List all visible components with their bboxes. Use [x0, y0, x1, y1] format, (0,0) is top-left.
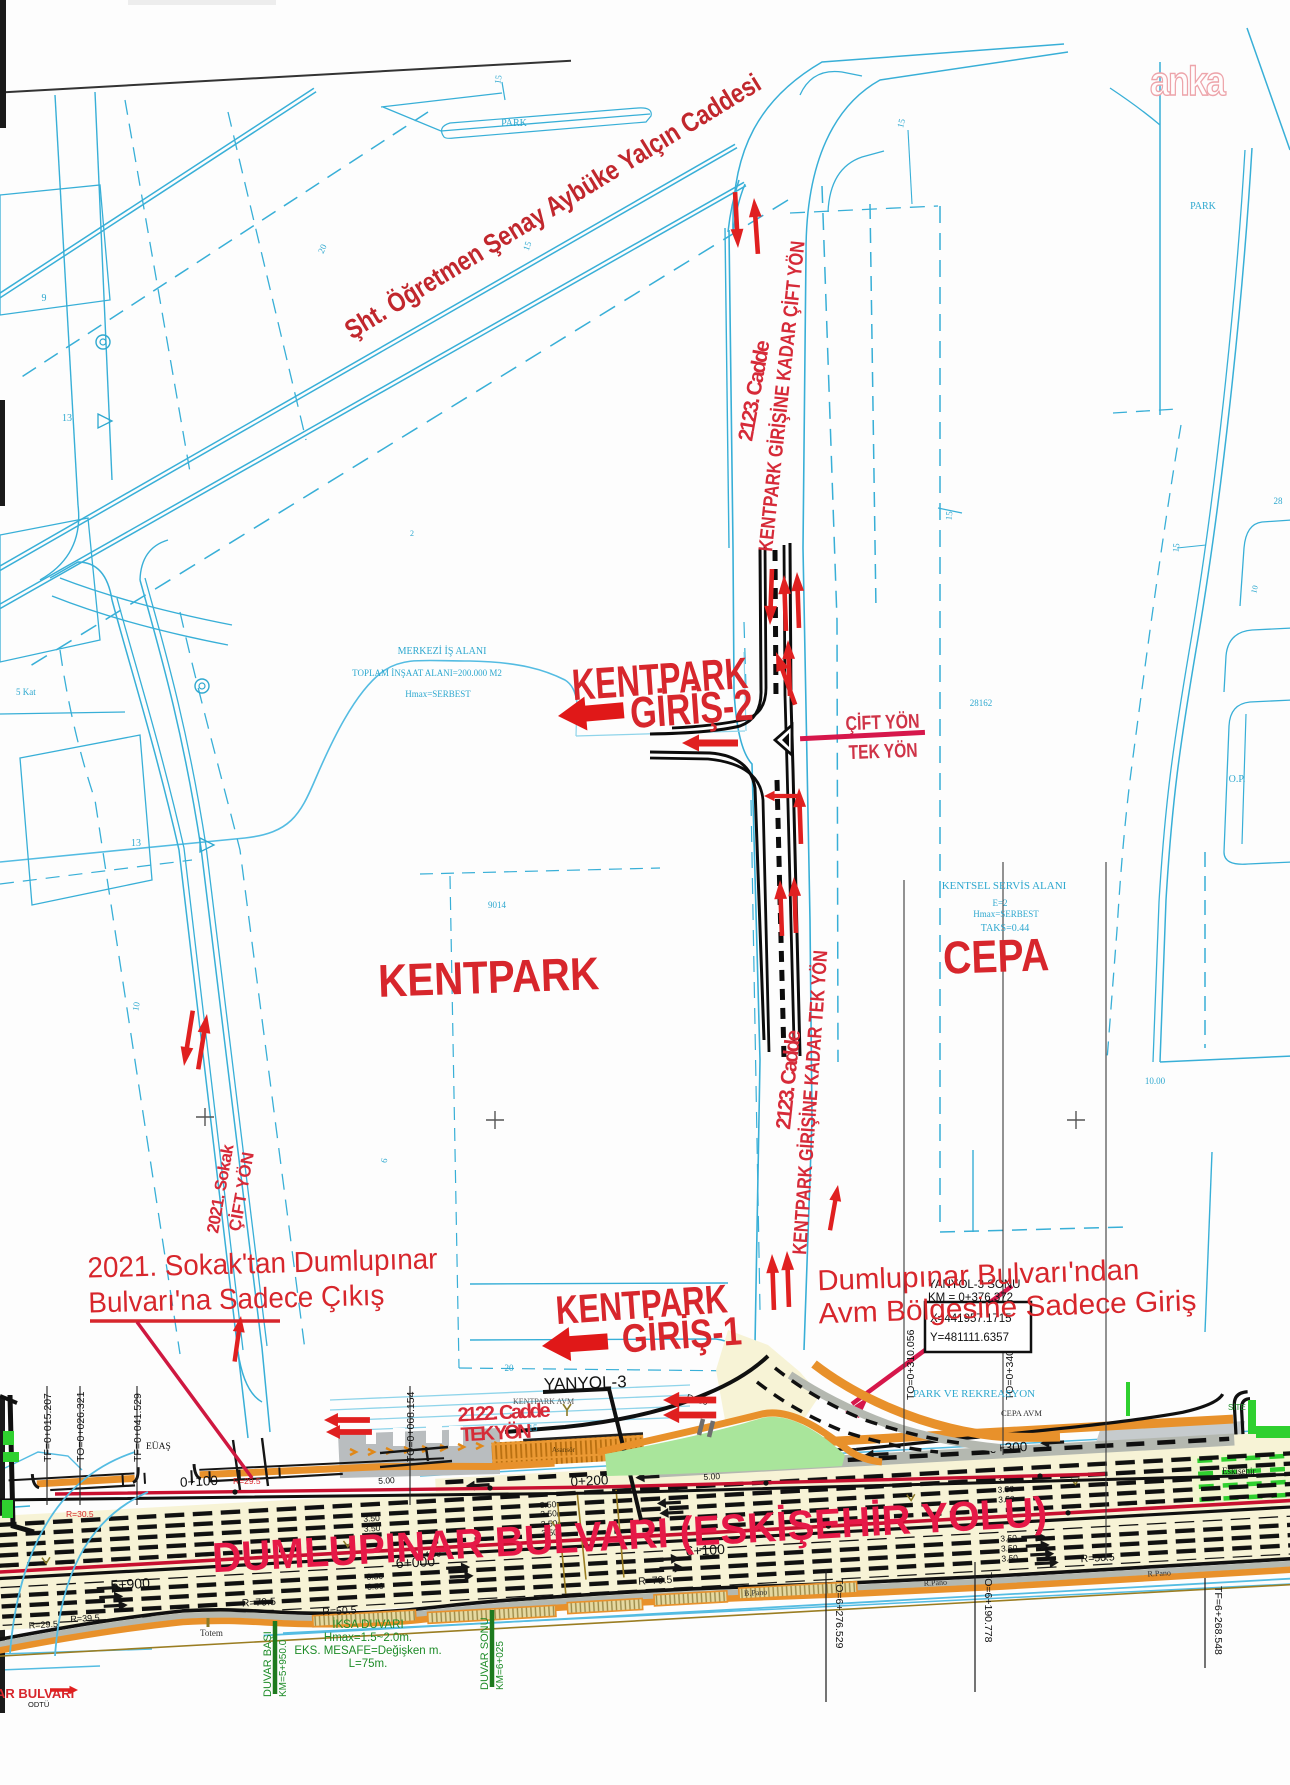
svg-text:5 Kat: 5 Kat [16, 687, 36, 697]
svg-text:TEK YÖN: TEK YÖN [460, 1420, 532, 1447]
svg-text:EKS. MESAFE=Değişken m.: EKS. MESAFE=Değişken m. [294, 1645, 441, 1657]
svg-text:R=50.5: R=50.5 [1080, 1551, 1115, 1565]
svg-text:Eskişehir: Eskişehir [1222, 1466, 1256, 1476]
svg-text:TF=6+268.548: TF=6+268.548 [1212, 1586, 1224, 1655]
svg-text:R.Pano: R.Pano [1147, 1568, 1171, 1578]
svg-text:9014: 9014 [488, 900, 507, 910]
svg-text:CEPA AVM: CEPA AVM [1001, 1408, 1042, 1418]
svg-text:3.50: 3.50 [367, 1581, 384, 1592]
svg-text:15: 15 [1171, 542, 1182, 552]
svg-text:13: 13 [62, 413, 72, 424]
svg-text:DUVAR SONU: DUVAR SONU [479, 1617, 491, 1690]
svg-text:Hmax=SERBEST: Hmax=SERBEST [405, 689, 471, 699]
svg-text:ODTÜ: ODTÜ [28, 1700, 49, 1709]
svg-text:Y=481111.6357: Y=481111.6357 [930, 1332, 1009, 1344]
svg-text:0+100: 0+100 [180, 1473, 219, 1490]
svg-text:Asansör: Asansör [552, 1446, 576, 1454]
svg-text:5+900: 5+900 [110, 1575, 150, 1593]
svg-text:28: 28 [1274, 496, 1284, 506]
svg-text:2: 2 [410, 529, 414, 538]
svg-text:28162: 28162 [970, 698, 993, 708]
svg-text:İKSA DUVARI: İKSA DUVARI [332, 1618, 403, 1631]
svg-text:3.50: 3.50 [1001, 1553, 1018, 1564]
svg-text:R.Pano: R.Pano [923, 1578, 947, 1588]
svg-text:GİRİŞ-2: GİRİŞ-2 [629, 681, 755, 738]
svg-text:20: 20 [505, 1363, 515, 1373]
svg-text:O.P.: O.P. [1229, 774, 1246, 785]
svg-text:R=29.5: R=29.5 [28, 1619, 58, 1631]
svg-text:PARK: PARK [1190, 201, 1217, 212]
svg-text:R=39.5: R=39.5 [70, 1613, 100, 1625]
svg-text:5.00: 5.00 [378, 1475, 395, 1486]
svg-text:anka: anka [1150, 58, 1227, 104]
svg-text:9: 9 [42, 293, 47, 304]
svg-text:TF=0+015.207: TF=0+015.207 [42, 1393, 54, 1462]
svg-text:GİRİŞ-1: GİRİŞ-1 [620, 1309, 743, 1361]
svg-text:KM=5+950.0: KM=5+950.0 [278, 1639, 289, 1697]
svg-text:TO=6+190.778: TO=6+190.778 [982, 1572, 994, 1643]
svg-text:R=30.5: R=30.5 [66, 1509, 94, 1519]
svg-text:Hmax=1.5~2.0m.: Hmax=1.5~2.0m. [324, 1632, 412, 1644]
svg-text:B.Pano: B.Pano [744, 1588, 768, 1598]
svg-text:PARK VE REKREASYON: PARK VE REKREASYON [913, 1388, 1035, 1400]
svg-text:L=75m.: L=75m. [349, 1658, 388, 1670]
svg-text:KENTPARK: KENTPARK [377, 947, 600, 1007]
svg-text:E=2: E=2 [992, 898, 1007, 908]
svg-text:TEK YÖN: TEK YÖN [848, 739, 918, 764]
svg-text:KM=6+025: KM=6+025 [495, 1641, 506, 1690]
svg-text:KENTSEL SERVİS ALANI: KENTSEL SERVİS ALANI [942, 880, 1067, 892]
svg-text:15: 15 [529, 1423, 539, 1433]
svg-text:R=79.5: R=79.5 [638, 1574, 673, 1588]
svg-text:Totem: Totem [200, 1628, 223, 1638]
svg-text:TO=0+026.321: TO=0+026.321 [75, 1391, 87, 1462]
svg-text:SİTE: SİTE [1228, 1403, 1246, 1412]
svg-text:DUVAR BAŞI: DUVAR BAŞI [262, 1631, 274, 1697]
svg-text:Hmax=SERBEST: Hmax=SERBEST [973, 909, 1039, 919]
svg-text:TOPLAM İNŞAAT ALANI=200.000 M2: TOPLAM İNŞAAT ALANI=200.000 M2 [352, 668, 502, 678]
svg-text:TO=6+276.529: TO=6+276.529 [833, 1578, 845, 1649]
svg-text:R=79.5: R=79.5 [241, 1596, 276, 1610]
svg-text:EÜAŞ: EÜAŞ [146, 1440, 171, 1452]
svg-text:15: 15 [944, 510, 955, 520]
svg-text:TAKS=0.44: TAKS=0.44 [981, 923, 1029, 934]
svg-text:CEPA: CEPA [942, 928, 1050, 984]
svg-text:KENTPARK AVM: KENTPARK AVM [513, 1397, 574, 1406]
svg-text:TF=0+041.529: TF=0+041.529 [132, 1393, 144, 1462]
svg-text:MERKEZİ İŞ ALANI: MERKEZİ İŞ ALANI [398, 645, 487, 657]
svg-text:10.00: 10.00 [1145, 1076, 1166, 1086]
svg-text:R=50.5: R=50.5 [322, 1604, 357, 1618]
svg-text:13: 13 [131, 838, 141, 849]
svg-text:YANYOL-3: YANYOL-3 [543, 1372, 626, 1394]
svg-text:PARK: PARK [501, 118, 528, 129]
